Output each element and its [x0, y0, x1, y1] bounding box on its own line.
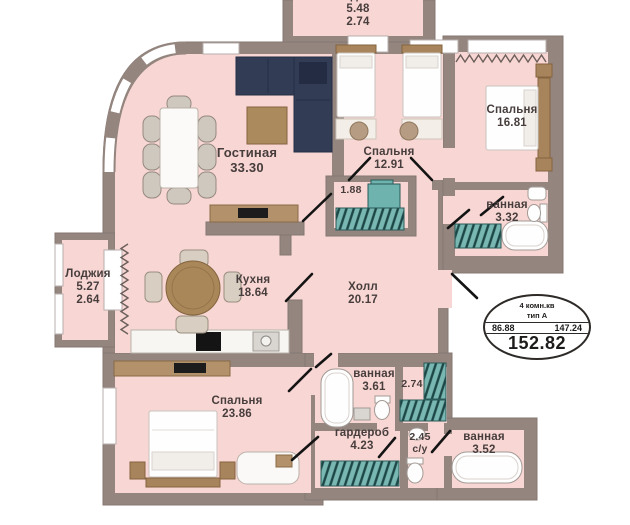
dining-table — [160, 108, 198, 188]
bathtub — [321, 369, 353, 427]
headboard — [538, 78, 550, 158]
sofa-cushion — [276, 455, 292, 467]
room-name: Спальня — [211, 395, 262, 408]
sink-icon — [354, 408, 370, 420]
room-label-closet-hall: 1.88 — [340, 185, 361, 197]
wardrobe-shelf — [400, 400, 446, 421]
room-label-loggia-left: Лоджия 5.27 2.64 — [65, 268, 110, 307]
room-label-closet-middle: 2.74 — [401, 379, 422, 391]
room-label-wc: 2.45 с/у — [409, 432, 430, 456]
room-name: ванная — [486, 199, 528, 212]
entrance-door-swing — [452, 274, 477, 298]
wardrobe-shelf — [455, 224, 501, 248]
chair-icon — [176, 316, 208, 333]
room-label-bedroom-bottom: Спальня 23.86 — [211, 395, 262, 421]
room-area: 4.23 — [335, 440, 389, 453]
entrance-opening — [438, 270, 452, 308]
room-name: Спальня — [363, 146, 414, 159]
room-area: 23.86 — [211, 408, 262, 421]
room-name: Лоджия — [65, 268, 110, 281]
nightstand — [536, 64, 552, 77]
tv-partition-wall — [206, 222, 304, 235]
room-name: Холл — [348, 281, 378, 294]
room-area: 5.48 — [335, 3, 380, 16]
window — [55, 244, 63, 286]
sink-icon — [528, 187, 546, 200]
room-area: 1.88 — [340, 185, 361, 197]
door-gap — [443, 196, 455, 224]
wardrobe-cabinet — [368, 184, 400, 208]
room-label-bathroom-right: ванная 3.32 — [486, 199, 528, 225]
room-label-bathroom-middle: ванная 3.61 — [353, 368, 395, 394]
chair-icon — [143, 172, 161, 198]
room-area: 2.74 — [335, 16, 380, 29]
tv-icon — [174, 363, 206, 373]
wardrobe-shelf — [321, 461, 399, 486]
pillow — [406, 56, 438, 68]
nightstand — [536, 158, 552, 171]
toilet-icon — [375, 401, 390, 420]
window — [55, 294, 63, 334]
room-label-hall: Холл 20.17 — [348, 281, 378, 307]
stamp-area-other: 147.24 — [554, 323, 582, 333]
chair-icon — [198, 144, 216, 170]
stamp-type: тип A — [527, 311, 547, 320]
round-table — [166, 261, 220, 315]
room-area: 16.81 — [486, 117, 537, 130]
room-area: 3.52 — [463, 444, 505, 457]
room-area: 2.74 — [401, 379, 422, 391]
chair-icon — [198, 116, 216, 142]
wall-stub — [280, 235, 291, 255]
room-label-bedroom-top: Спальня 12.91 — [363, 146, 414, 172]
window — [203, 43, 239, 54]
headboard — [336, 45, 376, 53]
chair-icon — [145, 272, 162, 302]
nightstand — [130, 462, 145, 479]
room-name: Гостиная — [217, 146, 277, 161]
room-area: 3.61 — [353, 381, 395, 394]
sink-basin-icon — [261, 336, 271, 346]
door-gap — [443, 148, 455, 178]
wardrobe-shelf — [336, 208, 404, 230]
stamp-area-total: 152.82 — [508, 334, 566, 353]
room-name: ванная — [463, 431, 505, 444]
room-label-living-room: Гостиная 33.30 — [217, 146, 277, 175]
pillow — [340, 56, 372, 68]
pouf-icon — [400, 122, 418, 140]
pillow — [152, 452, 214, 470]
room-label-wardrobe: гардероб 4.23 — [335, 427, 389, 453]
stamp-rooms-count: 4 комн.кв — [520, 301, 555, 310]
pouf-icon — [350, 122, 368, 140]
chair-icon — [198, 172, 216, 198]
stove-icon — [196, 332, 221, 351]
toilet-icon — [528, 205, 541, 222]
nightstand — [220, 462, 235, 479]
stamp-area-living: 86.88 — [492, 323, 515, 333]
sofa-pillow — [299, 62, 327, 84]
room-area: 5.27 — [65, 281, 110, 294]
room-name: гардероб — [335, 427, 389, 440]
tv-icon — [238, 208, 268, 218]
room-name: Спальня — [486, 104, 537, 117]
room-area: 2.45 — [409, 432, 430, 444]
toilet-icon — [407, 463, 423, 483]
room-area: 20.17 — [348, 294, 378, 307]
coffee-table — [247, 107, 287, 144]
floor-plan: Лоджия 5.48 2.74 Гостиная 33.30 Спальня … — [0, 0, 630, 525]
toilet-tank — [540, 204, 547, 222]
room-label-top-loggia: Лоджия 5.48 2.74 — [335, 0, 380, 29]
window — [103, 388, 116, 444]
room-name: ванная — [353, 368, 395, 381]
window — [468, 40, 546, 53]
wardrobe-shelf — [424, 363, 446, 399]
tv-console-group — [210, 205, 298, 222]
kitchen-counter-group — [131, 330, 289, 353]
room-name: с/у — [409, 444, 430, 456]
apartment-info-stamp: 4 комн.кв тип A 86.88 147.24 152.82 — [483, 294, 591, 360]
room-name: Кухня — [236, 274, 271, 287]
room-area: 3.32 — [486, 212, 528, 225]
dresser — [114, 361, 230, 376]
room-label-kitchen: Кухня 18.64 — [236, 274, 271, 300]
kitchen-hall-wall — [288, 300, 302, 353]
floor-plan-canvas — [0, 0, 630, 525]
headboard — [146, 478, 220, 487]
room-area: 12.91 — [363, 159, 414, 172]
chair-icon — [143, 116, 161, 142]
room-label-bedroom-right: Спальня 16.81 — [486, 104, 537, 130]
room-area: 2.64 — [65, 294, 110, 307]
door-gap — [428, 423, 444, 431]
chair-icon — [167, 188, 191, 204]
chair-icon — [143, 144, 161, 170]
room-label-bathroom-bottom: ванная 3.52 — [463, 431, 505, 457]
room-area: 33.30 — [217, 161, 277, 176]
room-area: 18.64 — [236, 287, 271, 300]
headboard — [402, 45, 442, 53]
